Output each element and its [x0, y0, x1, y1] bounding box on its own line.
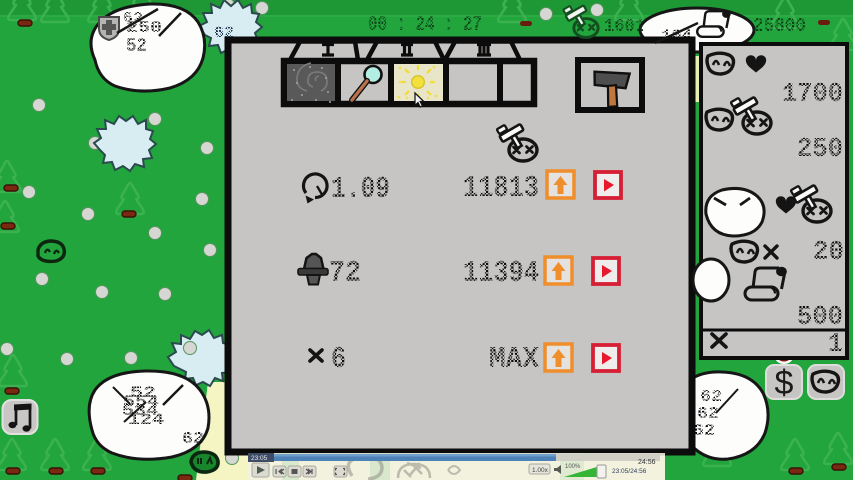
- svg-text:1601: 1601: [604, 17, 645, 37]
- svg-text:23:05: 23:05: [251, 455, 268, 462]
- svg-text:100%: 100%: [565, 464, 581, 470]
- svg-text:72: 72: [329, 256, 361, 291]
- svg-text:104: 104: [661, 27, 692, 45]
- svg-text:23:05/24:56: 23:05/24:56: [612, 468, 647, 475]
- svg-text:24:56: 24:56: [638, 459, 656, 466]
- svg-text:25800: 25800: [753, 15, 806, 37]
- svg-text:62: 62: [693, 422, 715, 441]
- svg-text:11394: 11394: [463, 256, 539, 291]
- svg-text:500: 500: [797, 303, 843, 333]
- svg-text:52: 52: [126, 35, 147, 57]
- svg-text:00 : 24 : 27: 00 : 24 : 27: [368, 14, 482, 37]
- svg-text:250: 250: [797, 135, 843, 165]
- svg-text:MAX: MAX: [489, 342, 539, 377]
- svg-text:62: 62: [214, 24, 234, 42]
- svg-text:6: 6: [331, 342, 346, 377]
- svg-text:11813: 11813: [463, 171, 539, 206]
- svg-text:62: 62: [182, 430, 204, 449]
- svg-text:1.00x: 1.00x: [532, 467, 549, 474]
- svg-text:$: $: [775, 364, 794, 402]
- svg-text:20: 20: [813, 238, 844, 268]
- svg-text:1.09: 1.09: [331, 172, 390, 207]
- svg-text:1700: 1700: [782, 80, 843, 110]
- svg-text:1: 1: [828, 330, 843, 360]
